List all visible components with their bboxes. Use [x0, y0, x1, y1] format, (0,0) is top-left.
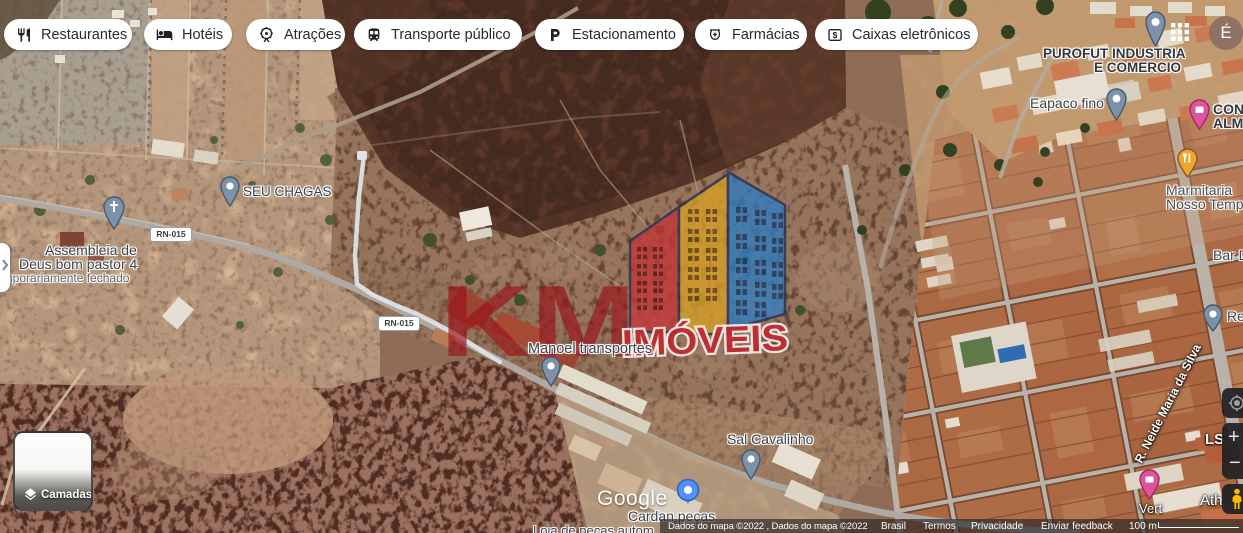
svg-text:$: $ [833, 30, 838, 40]
